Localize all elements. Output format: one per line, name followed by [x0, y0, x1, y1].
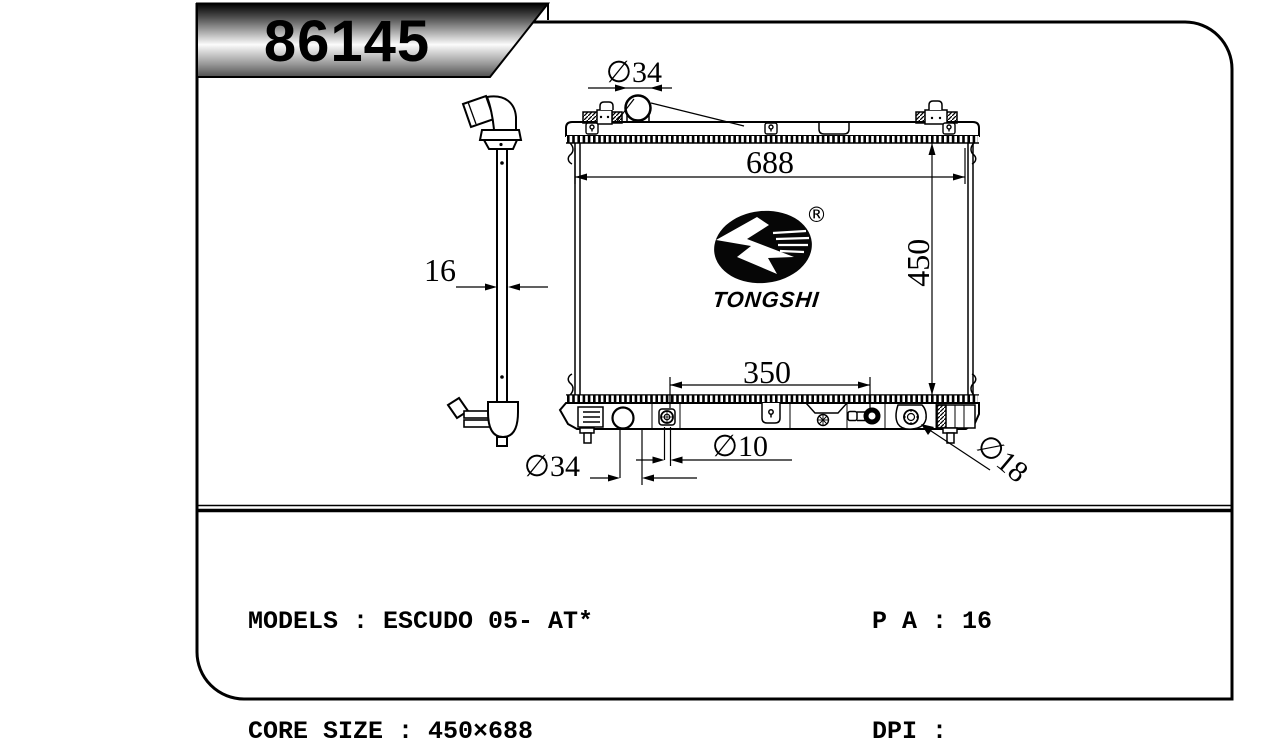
bottom-left-bracket [578, 407, 603, 443]
spec-core-size: CORE SIZE : 450×688 [248, 714, 593, 741]
logo-mark [711, 206, 816, 288]
drain-port [613, 408, 634, 429]
dim-thickness-lines [456, 284, 548, 291]
spec-pa: P A : 16 [872, 604, 992, 641]
dim-core-height-label: 450 [902, 226, 936, 300]
dim-lower-span-label: 350 [722, 356, 812, 390]
spec-dpi: DPI : [872, 714, 992, 741]
top-right-bracket [916, 101, 957, 124]
dim-thickness-label: 16 [418, 254, 462, 288]
side-view [448, 96, 548, 446]
dim-core-width-label: 688 [725, 146, 815, 180]
spec-models: MODELS : ESCUDO 05- AT* [248, 604, 593, 641]
logo-wordmark: TONGSHI [693, 287, 840, 313]
spec-column-right: P A : 16 DPI : OEM : NISSENS: [872, 530, 992, 741]
dim-drain-lines [590, 428, 697, 485]
outlet-boss [896, 405, 926, 429]
radiator-diagram [0, 0, 1261, 741]
dim-top-port-label: ∅34 [596, 57, 672, 89]
dim-small-port-label: ∅10 [700, 431, 780, 463]
bottom-center-clip [762, 403, 780, 423]
top-left-bracket [583, 102, 622, 124]
side-elbow [487, 96, 516, 130]
datasheet-page: 86145 ∅34 688 450 16 350 ∅10 ∅34 ∅18 ® T… [0, 0, 1261, 741]
dim-drain-label: ∅34 [512, 451, 592, 483]
part-number: 86145 [197, 8, 497, 75]
small-port [659, 409, 675, 425]
spec-column-left: MODELS : ESCUDO 05- AT* CORE SIZE : 450×… [248, 530, 593, 741]
registered-trademark-symbol: ® [806, 203, 827, 227]
side-bottom-tank [488, 402, 518, 437]
